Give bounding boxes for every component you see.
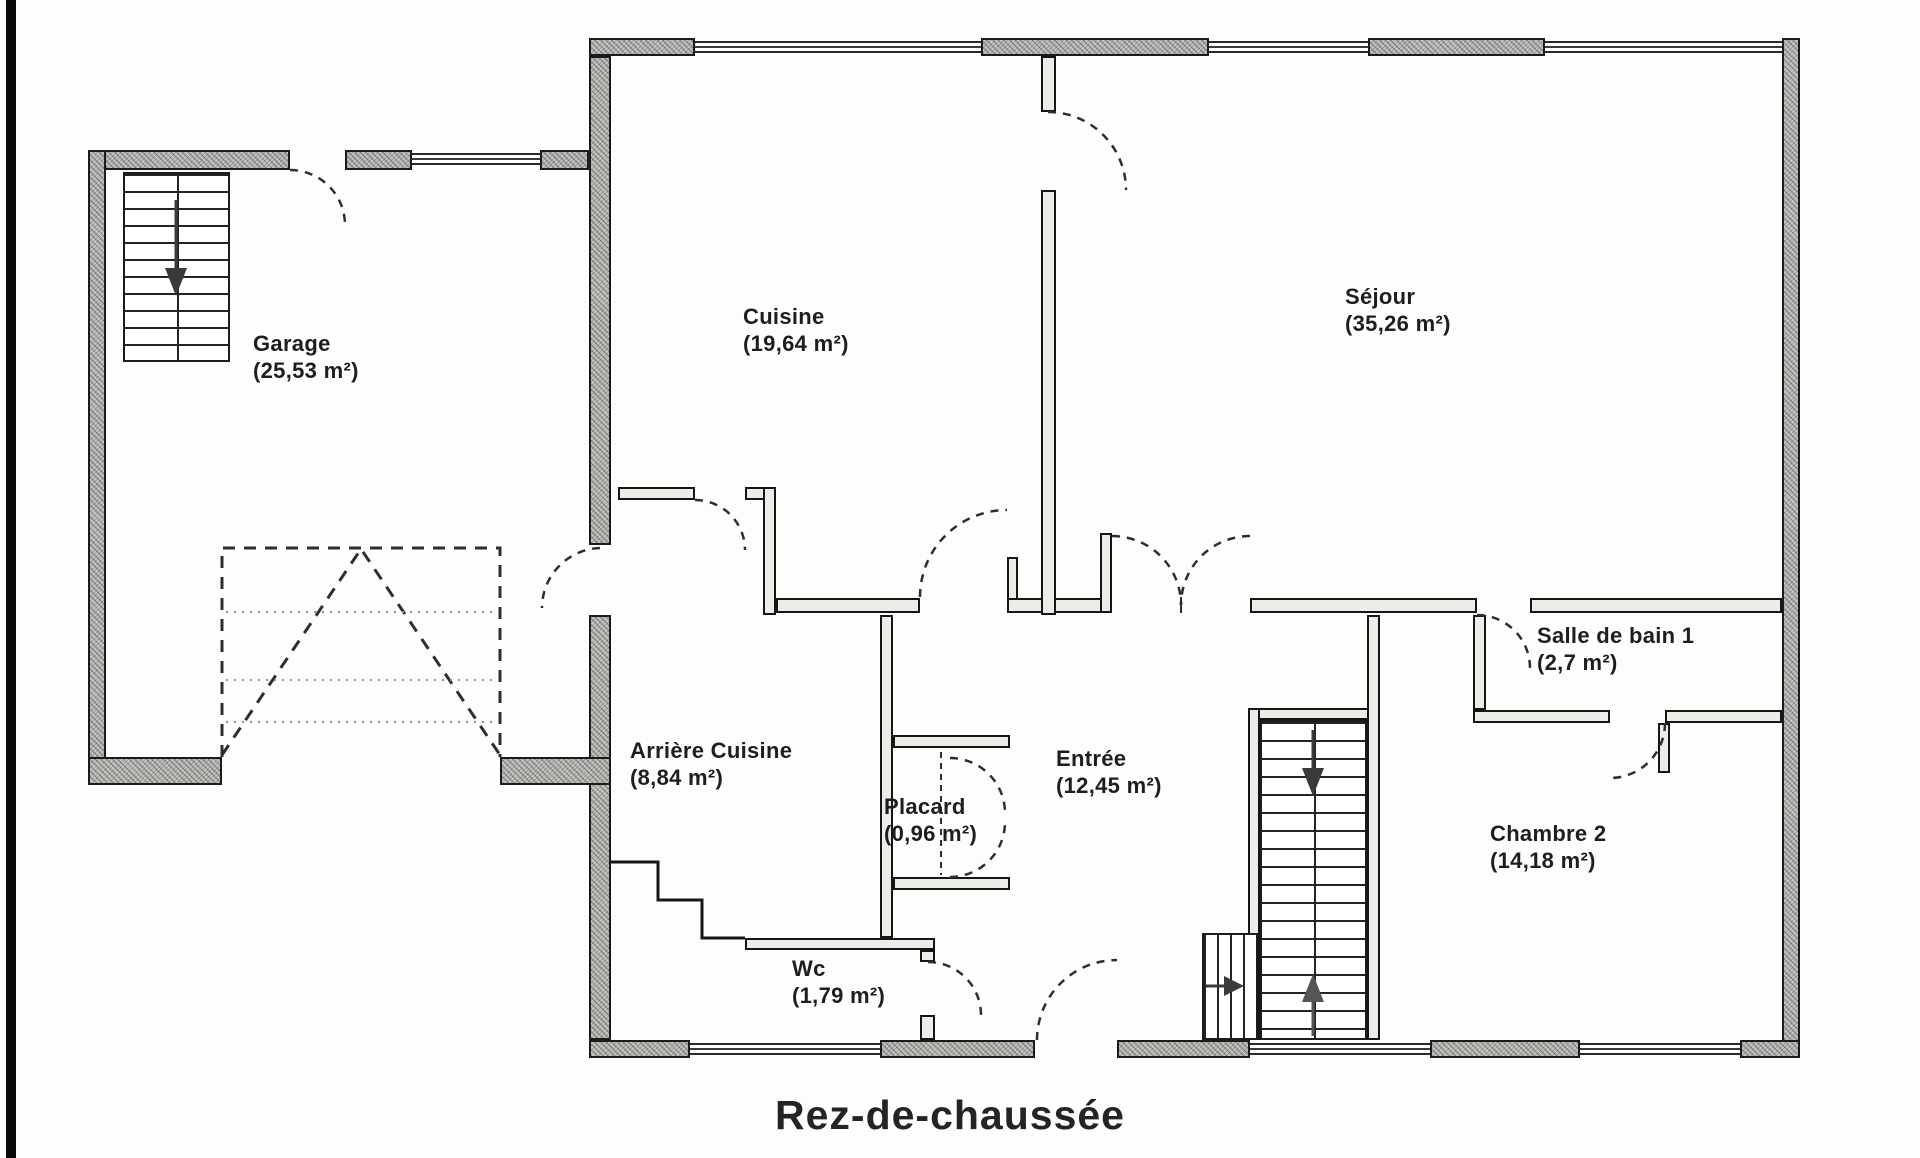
- window-garage-top: [412, 153, 540, 165]
- door-arc-sejour-top: [1048, 112, 1126, 190]
- door-arc-garage-entry: [290, 170, 345, 225]
- wall-bottom-pier-5: [1740, 1040, 1800, 1058]
- wall-placard-top: [893, 735, 1010, 748]
- wall-bottom-pier-2: [880, 1040, 1035, 1058]
- wall-placard-left: [880, 615, 893, 938]
- room-name: Garage: [253, 331, 331, 356]
- window-top-3: [1545, 41, 1782, 53]
- wall-wc-right-1: [920, 950, 935, 962]
- wall-cuisine-sejour: [1041, 190, 1056, 615]
- room-label-wc: Wc (1,79 m²): [792, 955, 885, 1009]
- scan-edge-bar: [6, 0, 16, 1158]
- room-label-placard: Placard (0,96 m²): [884, 793, 977, 847]
- room-name: Séjour: [1345, 284, 1415, 309]
- wall-cuisine-bottom-1: [618, 487, 695, 500]
- room-name: Cuisine: [743, 304, 825, 329]
- room-label-chambre-2: Chambre 2 (14,18 m²): [1490, 820, 1606, 874]
- room-label-cuisine: Cuisine (19,64 m²): [743, 303, 849, 357]
- floor-title: Rez-de-chaussée: [700, 1092, 1200, 1139]
- door-arc-double-right: [1181, 536, 1250, 605]
- wall-jog: [763, 487, 776, 615]
- room-area: (8,84 m²): [630, 764, 792, 791]
- wall-zigzag-wc: [611, 862, 745, 938]
- wall-cuisine-left: [589, 56, 611, 545]
- wall-wc-right-2: [920, 1015, 935, 1040]
- wall-divider-a: [776, 598, 920, 613]
- wall-bottom-pier-1: [589, 1040, 690, 1058]
- window-top-2: [1209, 41, 1368, 53]
- room-area: (35,26 m²): [1345, 310, 1451, 337]
- room-area: (14,18 m²): [1490, 847, 1606, 874]
- entry-steps: [1202, 933, 1258, 1040]
- door-arc-double-left: [1112, 536, 1181, 605]
- wall-divider-c: [1250, 598, 1477, 613]
- wall-garage-bottom-1: [88, 757, 222, 785]
- room-name: Placard: [884, 794, 966, 819]
- wall-bottom-pier-3: [1117, 1040, 1250, 1058]
- room-label-garage: Garage (25,53 m²): [253, 330, 359, 384]
- wall-top-pier-2: [981, 38, 1209, 56]
- room-label-entree: Entrée (12,45 m²): [1056, 745, 1162, 799]
- door-arc-cuisine: [695, 500, 745, 550]
- wall-garage-top-pier: [345, 150, 412, 170]
- garage-door-guides: [226, 612, 496, 722]
- room-name: Entrée: [1056, 746, 1126, 771]
- wall-garage-top-1: [88, 150, 290, 170]
- wall-top-pier-1: [589, 38, 695, 56]
- wall-divider-b: [1007, 598, 1112, 613]
- room-label-salle-de-bain-1: Salle de bain 1 (2,7 m²): [1537, 622, 1694, 676]
- garage-door-triangle: [222, 549, 500, 755]
- wall-stub-b: [1100, 533, 1112, 613]
- wall-bottom-pier-4: [1430, 1040, 1580, 1058]
- wall-stair-top: [1248, 708, 1380, 720]
- room-name: Wc: [792, 956, 826, 981]
- room-area: (25,53 m²): [253, 357, 359, 384]
- wall-wc-top: [745, 938, 935, 950]
- wall-right: [1782, 38, 1800, 1058]
- room-name: Arrière Cuisine: [630, 738, 792, 763]
- room-area: (0,96 m²): [884, 820, 977, 847]
- wall-garage-left: [88, 150, 106, 785]
- room-area: (1,79 m²): [792, 982, 885, 1009]
- door-arc-sdb-chambre: [1610, 723, 1665, 778]
- wall-divider-d: [1530, 598, 1782, 613]
- wall-lower-left: [589, 615, 611, 1040]
- wall-garage-top-2: [540, 150, 589, 170]
- door-arc-wc: [928, 962, 981, 1015]
- garage-door-outline: [222, 548, 500, 757]
- room-label-sejour: Séjour (35,26 m²): [1345, 283, 1451, 337]
- door-arc-front-entrance: [1037, 960, 1117, 1040]
- room-area: (2,7 m²): [1537, 649, 1694, 676]
- plan-annotations: [0, 0, 1920, 1158]
- wall-sdb-bottom-1: [1473, 710, 1610, 723]
- room-name: Chambre 2: [1490, 821, 1606, 846]
- window-bottom-3: [1580, 1043, 1740, 1055]
- wall-sdb-left: [1473, 615, 1486, 710]
- door-arcs: [290, 112, 1665, 1040]
- room-area: (19,64 m²): [743, 330, 849, 357]
- door-arc-garage-house: [542, 548, 600, 608]
- floor-plan: Garage (25,53 m²) Cuisine (19,64 m²) Séj…: [0, 0, 1920, 1158]
- wall-sdb-bottom-2: [1665, 710, 1782, 723]
- main-staircase: [1260, 720, 1367, 1040]
- garage-door-swing: [222, 548, 500, 757]
- room-name: Salle de bain 1: [1537, 623, 1694, 648]
- room-area: (12,45 m²): [1056, 772, 1162, 799]
- wall-top-pier-3: [1368, 38, 1545, 56]
- window-top-1: [695, 41, 981, 53]
- window-bottom-1: [690, 1043, 880, 1055]
- wall-cuisine-sejour-top: [1041, 56, 1056, 112]
- window-bottom-2: [1250, 1043, 1430, 1055]
- garage-staircase: [123, 172, 230, 362]
- wall-sdb-stub: [1658, 723, 1670, 773]
- wall-placard-bottom: [893, 877, 1010, 890]
- wall-stair-right: [1367, 615, 1380, 1040]
- door-arc-entree-corridor: [920, 510, 1007, 597]
- wall-garage-bottom-2: [500, 757, 611, 785]
- room-label-arriere-cuisine: Arrière Cuisine (8,84 m²): [630, 737, 792, 791]
